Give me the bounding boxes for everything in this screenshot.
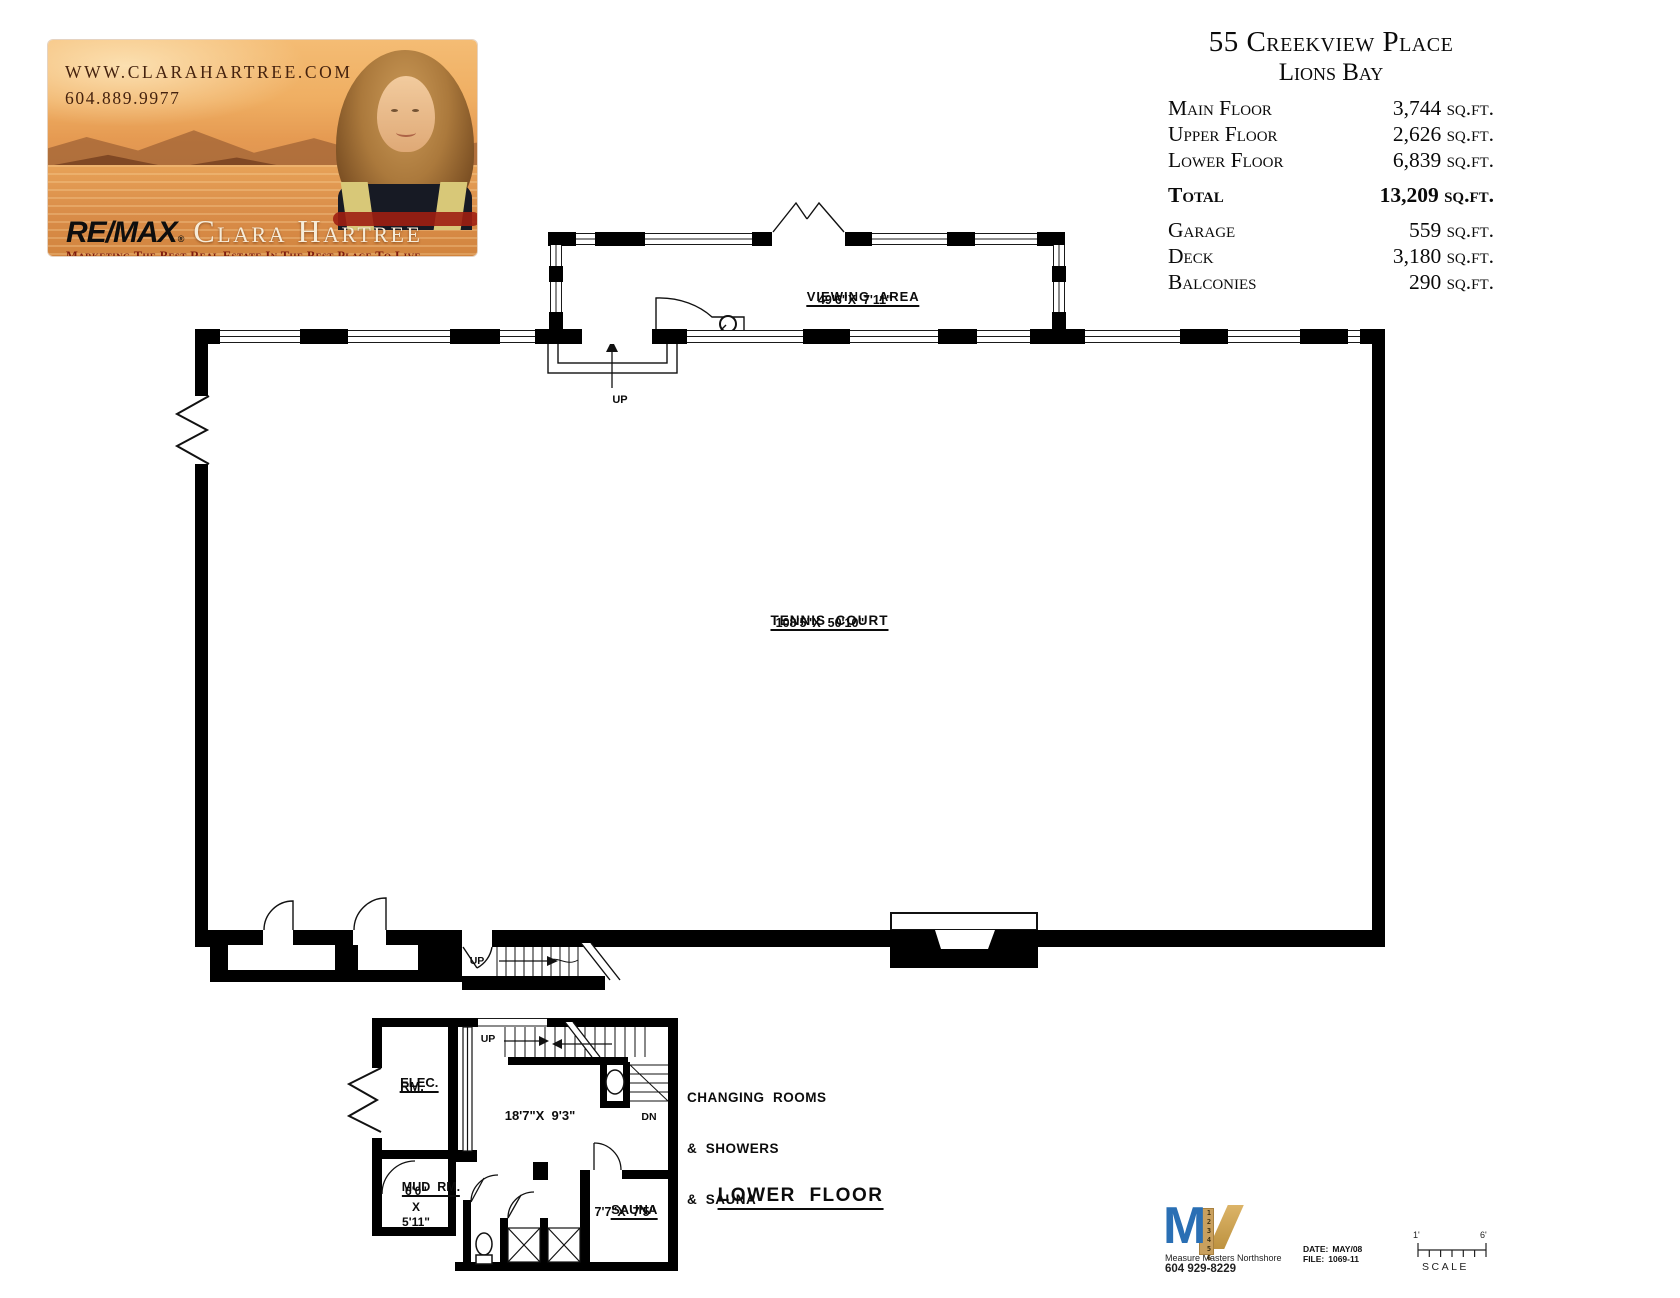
date-file-block: DATE:MAY/08 FILE:1069-11 (1303, 1244, 1362, 1264)
toilet-icon (476, 1233, 492, 1264)
floor-title: LOWER FLOOR (691, 1163, 884, 1232)
scale-label: SCALE (1422, 1261, 1469, 1273)
tennis-court-dims: 108'5"X 50'10" (776, 616, 865, 630)
file-label: FILE: (1303, 1254, 1324, 1264)
floor-plan-drawing (0, 0, 1680, 1298)
annex-rooms (210, 945, 462, 982)
wall-break-symbol (177, 396, 209, 464)
french-doors-icon (773, 203, 844, 232)
logo-m-icon: M (1163, 1196, 1206, 1256)
center-platform (890, 913, 1038, 968)
mud-room-dim-x: X (412, 1200, 420, 1214)
changing-line-2: & SHOWERS (687, 1140, 827, 1157)
mud-room-dim-h: 5'11" (402, 1215, 430, 1229)
scale-bar: 1' 6' SCALE (1410, 1230, 1510, 1276)
staircase-up-label: UP (481, 1033, 496, 1045)
changing-room-dims: 18'7"X 9'3" (505, 1108, 576, 1123)
entry-steps (548, 340, 677, 388)
tall-door-panel (463, 1027, 472, 1151)
viewing-area-dims: 49'6"X 7'11" (818, 293, 892, 307)
file-value: 1069-11 (1328, 1254, 1359, 1264)
bar-counter-icon (656, 298, 744, 332)
steps-up-label: UP (612, 394, 627, 406)
date-value: MAY/08 (1332, 1244, 1362, 1254)
scale-ruler-icon (1410, 1230, 1510, 1260)
surveyor-phone: 604 929-8229 (1165, 1263, 1236, 1275)
flyer-page: WWW.CLARAHARTREE.COM 604.889.9977 RE/MAX… (0, 0, 1680, 1298)
corridor-up-label: UP (470, 955, 485, 967)
date-row: DATE:MAY/08 (1303, 1244, 1362, 1254)
file-row: FILE:1069-11 (1303, 1254, 1362, 1264)
elec-room-label-2: RM. (400, 1079, 424, 1094)
dn-stairs (628, 1062, 668, 1107)
mud-room-dim-w: 6'0" (405, 1184, 427, 1198)
date-label: DATE: (1303, 1244, 1328, 1254)
measure-masters-logo: 123456 M (1165, 1207, 1275, 1255)
sauna-dims: 7'7"X 7'5" (595, 1205, 656, 1219)
water-closet (600, 1062, 630, 1108)
stair-corridor (462, 943, 620, 990)
small-plan-break-symbol (349, 1068, 381, 1132)
staircase-dn-label: DN (641, 1111, 656, 1123)
staircase (504, 1022, 645, 1057)
changing-line-1: CHANGING ROOMS (687, 1089, 827, 1106)
